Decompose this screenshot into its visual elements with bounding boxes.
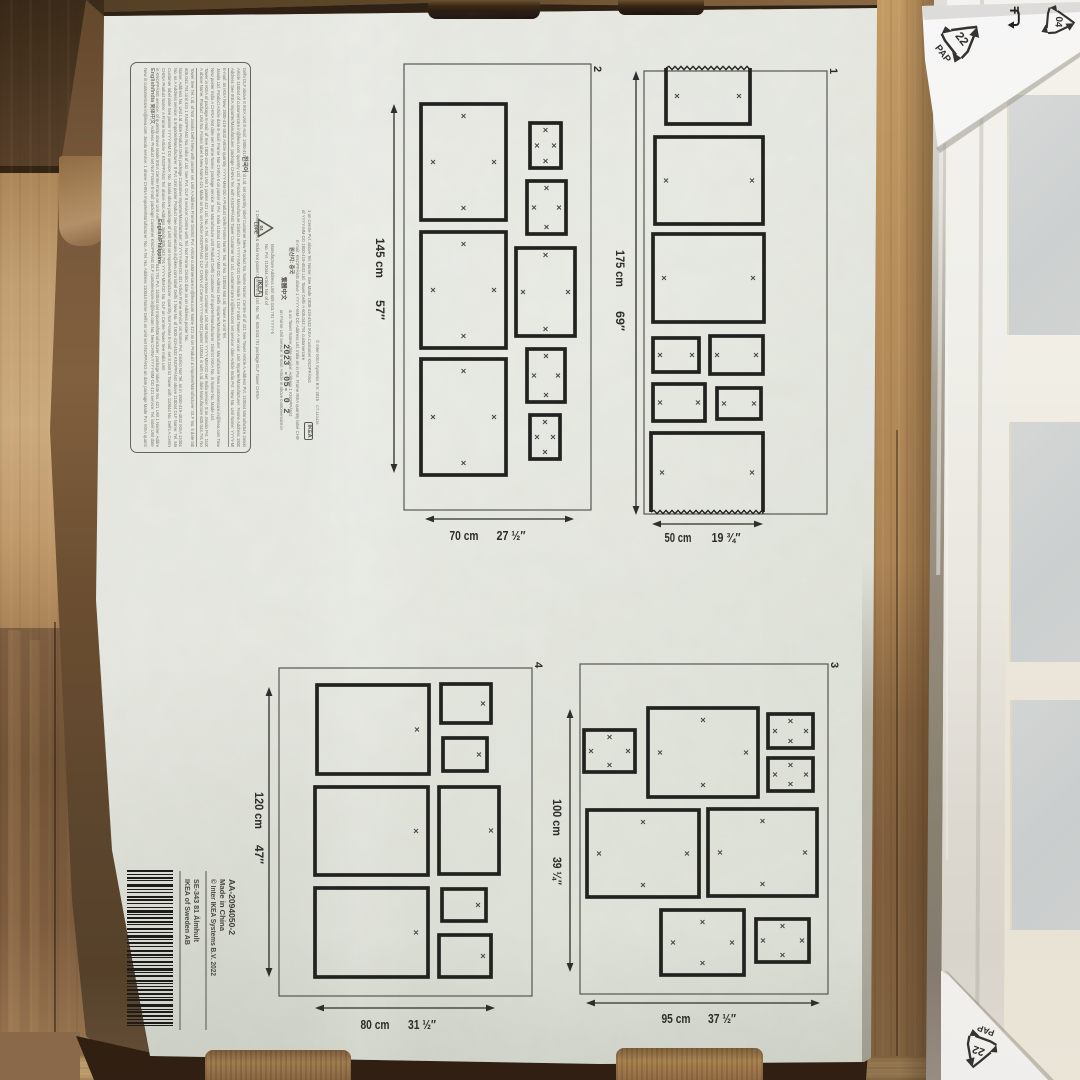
svg-text:04: 04 <box>1052 16 1064 28</box>
svg-text:22: 22 <box>971 1043 986 1058</box>
